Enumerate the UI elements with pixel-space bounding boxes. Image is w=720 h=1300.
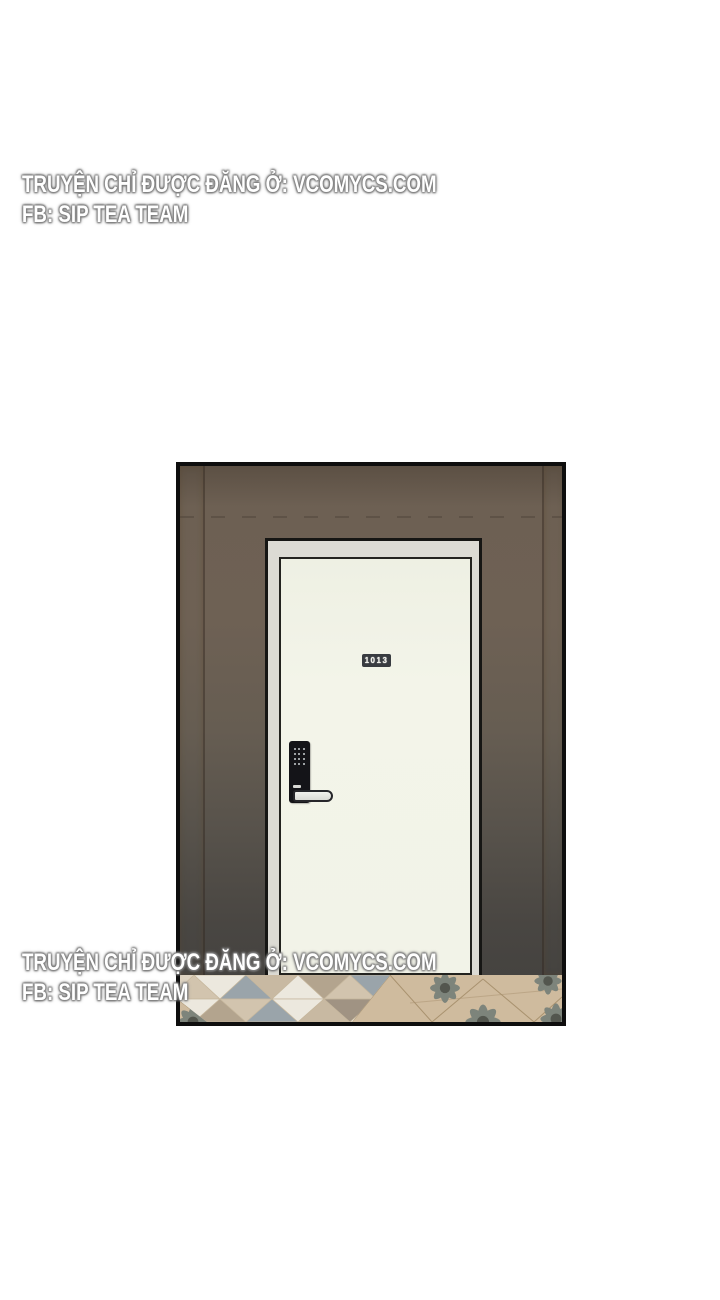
watermark-bottom: TRUYỆN CHỈ ĐƯỢC ĐĂNG Ở: VCOMYCS.COM FB: … <box>22 948 437 1008</box>
panel-artwork: 1013 <box>180 466 562 1022</box>
watermark-top-line2: FB: SIP TEA TEAM <box>22 200 437 230</box>
watermark-bottom-line1: TRUYỆN CHỈ ĐƯỢC ĐĂNG Ở: VCOMYCS.COM <box>22 948 437 978</box>
watermark-top-line1: TRUYỆN CHỈ ĐƯỢC ĐĂNG Ở: VCOMYCS.COM <box>22 170 437 200</box>
comic-page: { "watermark": { "line1": "TRUYỆN CHỈ ĐƯ… <box>0 0 720 1300</box>
lock-notch <box>293 785 301 788</box>
door-handle <box>293 790 333 802</box>
door-number: 1013 <box>365 656 389 665</box>
watermark-top: TRUYỆN CHỈ ĐƯỢC ĐĂNG Ở: VCOMYCS.COM FB: … <box>22 170 437 230</box>
wood-pillar-left <box>180 466 205 975</box>
apartment-door: 1013 <box>279 557 472 975</box>
comic-panel: 1013 <box>176 462 566 1026</box>
door-number-plate: 1013 <box>362 654 391 667</box>
wood-pillar-right <box>542 466 562 975</box>
lock-keypad-dots <box>293 748 306 765</box>
watermark-bottom-line2: FB: SIP TEA TEAM <box>22 978 437 1008</box>
